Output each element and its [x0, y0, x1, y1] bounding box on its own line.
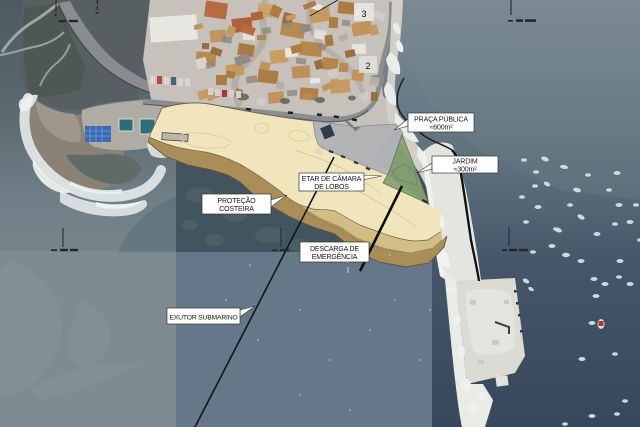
- svg-text:JARDIM: JARDIM: [452, 159, 477, 166]
- svg-text:COSTEIRA: COSTEIRA: [219, 206, 254, 213]
- svg-text:PRAÇA PÚBLICA: PRAÇA PÚBLICA: [414, 115, 468, 124]
- svg-text:DESCARGA DE: DESCARGA DE: [310, 246, 359, 253]
- svg-text:3: 3: [361, 9, 366, 19]
- svg-text:≈300m²: ≈300m²: [454, 167, 478, 174]
- svg-text:ETAR DE CÂMARA: ETAR DE CÂMARA: [302, 174, 362, 183]
- svg-text:2: 2: [365, 61, 370, 71]
- svg-text:EXUTOR SUBMARINO: EXUTOR SUBMARINO: [169, 315, 237, 322]
- svg-text:EMERGÊNCIA: EMERGÊNCIA: [312, 252, 358, 261]
- svg-text:DE LOBOS: DE LOBOS: [314, 184, 349, 191]
- svg-text:≈600m²: ≈600m²: [430, 125, 454, 132]
- svg-text:PROTEÇÃO: PROTEÇÃO: [217, 196, 256, 205]
